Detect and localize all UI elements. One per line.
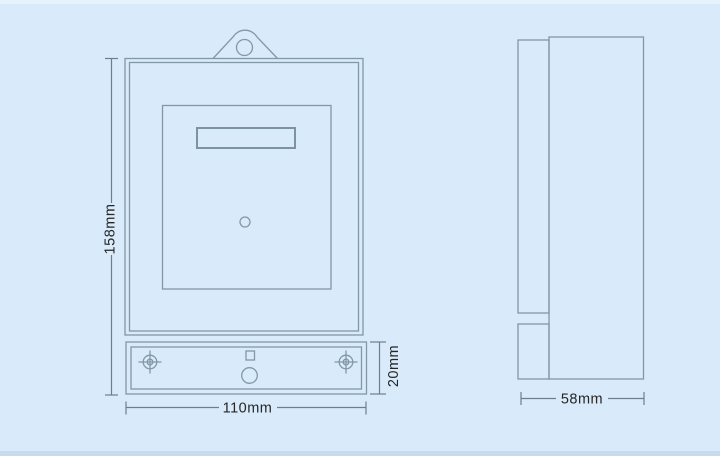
background-bottom-strip (0, 451, 720, 456)
meter-dimension-drawing: 158mm 20mm 110mm 58mm (0, 0, 720, 456)
dim-label-width: 110mm (223, 401, 273, 417)
dim-label-depth: 58mm (561, 392, 603, 408)
drawing-canvas: 158mm 20mm 110mm 58mm (0, 0, 720, 456)
background-top-highlight (0, 0, 720, 4)
dim-label-height: 158mm (103, 204, 119, 255)
dim-label-cover-height: 20mm (386, 345, 402, 387)
